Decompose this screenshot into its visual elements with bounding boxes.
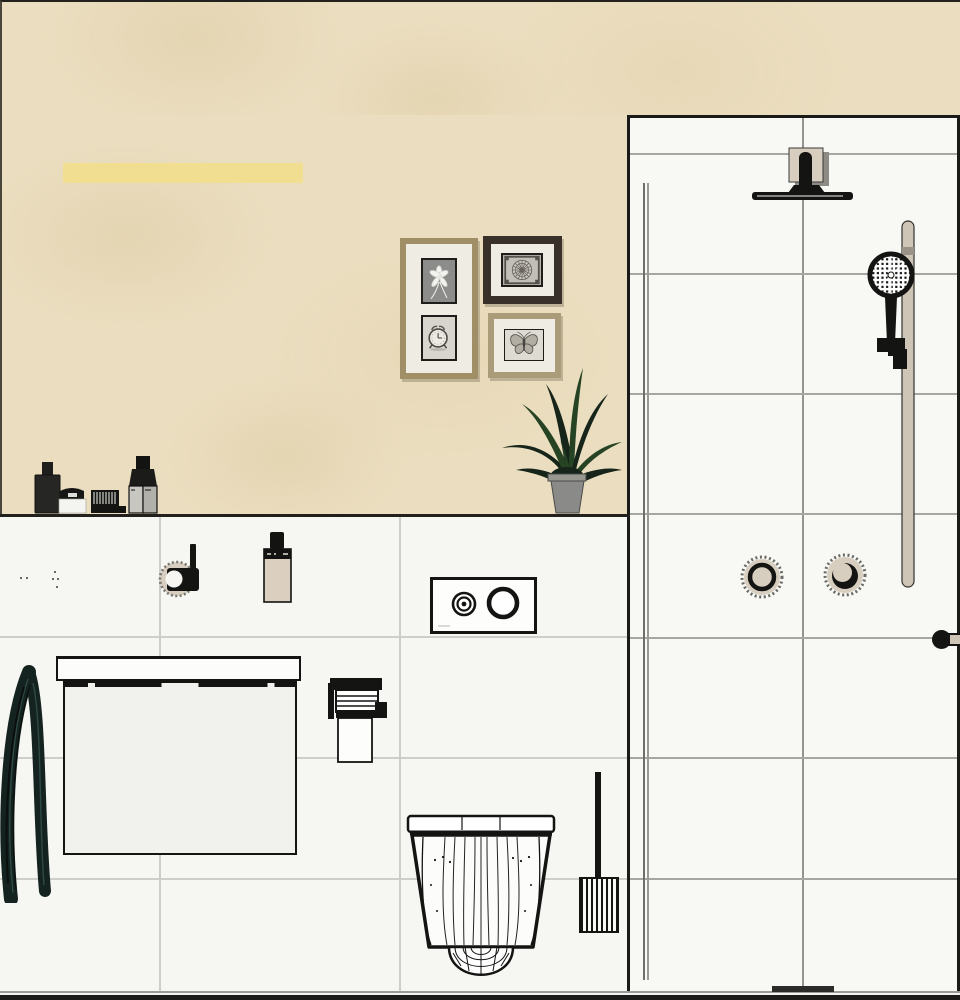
wall-speck — [57, 578, 59, 580]
flower-icon — [423, 260, 455, 302]
rosette-photo-icon — [501, 253, 543, 287]
tile-grout-line — [802, 118, 804, 991]
wall-light-bar — [63, 163, 303, 183]
wall-valve — [154, 540, 204, 598]
thermostat-knob — [738, 553, 786, 601]
butterfly-icon — [505, 330, 543, 360]
toilet-paper-holder — [325, 674, 390, 764]
wall-speck — [20, 577, 22, 579]
rosette-medallion-icon — [503, 255, 541, 285]
wall-speck — [56, 586, 58, 588]
wall-hung-toilet — [405, 813, 557, 980]
wall-speck — [26, 577, 28, 579]
vanity-countertop — [56, 656, 301, 681]
tile-grout-line — [630, 878, 957, 880]
picture-frame-tall — [400, 238, 478, 379]
painted-wall-upper — [0, 0, 960, 117]
soap-bottle-icon — [263, 530, 293, 604]
potted-plant — [496, 358, 626, 515]
plant-icon — [496, 358, 626, 515]
picture-frame-square — [483, 236, 562, 304]
tile-grout-line — [0, 636, 627, 638]
hand-shower-icon — [862, 248, 922, 373]
glass-screen-edge — [643, 183, 645, 980]
flower-photo-icon — [421, 258, 457, 304]
butterfly-photo-icon — [504, 329, 544, 361]
perfume-bottle-neck — [42, 462, 53, 476]
toilet-icon — [405, 813, 557, 980]
rain-shower-icon — [745, 140, 860, 205]
floor-band — [0, 995, 960, 1000]
toiletries-icons — [20, 438, 180, 518]
tile-grout-line — [399, 517, 401, 992]
shower-floor-drain — [772, 986, 834, 992]
clock-photo-icon — [421, 315, 457, 361]
toilet-paper-icon — [325, 674, 390, 764]
wall-valve-icon — [154, 540, 204, 598]
rain-shower-head — [745, 140, 860, 205]
diverter-knob-icon — [821, 551, 869, 599]
wall-speck — [52, 578, 54, 580]
diverter-knob — [821, 551, 869, 599]
soap-bottle — [263, 530, 293, 604]
flush-actuator-plate — [430, 577, 537, 634]
towel-icon — [0, 663, 58, 903]
bathroom-elevation-rendering — [0, 0, 960, 1000]
vanity-cabinet — [63, 681, 297, 855]
flush-plate-icon — [430, 577, 537, 634]
glass-screen-edge — [647, 183, 649, 980]
alarm-clock-icon — [423, 317, 455, 359]
tile-grout-line — [630, 757, 957, 759]
wall-speck — [54, 571, 56, 573]
towel-bar — [948, 633, 960, 646]
toilet-brush-handle — [595, 772, 601, 878]
ledge-toiletries — [20, 438, 180, 518]
tile-grout-line — [630, 637, 957, 639]
hanging-towel — [0, 663, 58, 903]
hand-shower — [862, 248, 922, 373]
toilet-brush-holder — [579, 877, 619, 933]
thermostat-knob-icon — [738, 553, 786, 601]
